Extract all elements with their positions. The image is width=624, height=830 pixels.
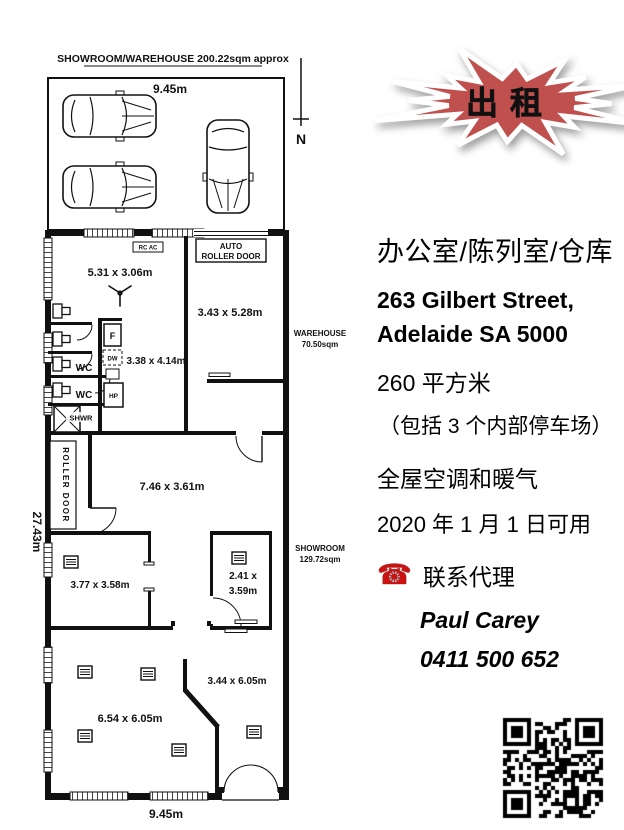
address-line-2: Adelaide SA 5000 bbox=[377, 321, 568, 348]
showroom-area-size: 129.72sqm bbox=[300, 555, 341, 564]
address-line-1: 263 Gilbert Street, bbox=[377, 287, 574, 314]
vent-icon bbox=[64, 556, 78, 568]
toilet-icon bbox=[53, 357, 70, 371]
room-label-middle: 7.46 x 3.61m bbox=[140, 481, 205, 493]
diagonal-wall bbox=[185, 690, 218, 727]
vent-icon bbox=[232, 552, 246, 564]
vent-icon bbox=[78, 730, 92, 742]
wc-label-1: WC bbox=[76, 363, 93, 374]
auto-roller-label-1: AUTO bbox=[220, 242, 243, 251]
room-label-bottom-right: 3.44 x 6.05m bbox=[208, 676, 267, 687]
toilet-icon bbox=[53, 383, 70, 397]
climate-text: 全屋空调和暖气 bbox=[377, 460, 538, 494]
vent-icon bbox=[141, 668, 155, 680]
contact-label: 联系代理 bbox=[423, 558, 515, 592]
listing-heading: 办公室/陈列室/仓库 bbox=[377, 230, 613, 269]
double-door bbox=[219, 765, 283, 801]
shower-label: SHWR bbox=[70, 414, 93, 423]
car-icon bbox=[63, 162, 156, 212]
banner-label: 出租 bbox=[466, 85, 554, 121]
roller-door-label: ROLLER DOOR bbox=[61, 447, 70, 523]
vent-icon bbox=[78, 666, 92, 678]
showroom-area-name: SHOWROOM bbox=[295, 544, 345, 553]
toilet-icon bbox=[53, 304, 70, 318]
wc-label-2: WC bbox=[76, 390, 93, 401]
auto-roller-label-2: ROLLER DOOR bbox=[201, 252, 260, 261]
room-label-small-left: 3.77 x 3.58m bbox=[71, 580, 130, 591]
qr-code bbox=[497, 712, 609, 824]
dishwasher-label: DW bbox=[108, 357, 118, 363]
for-rent-banner: 出租 bbox=[352, 20, 624, 190]
vent-icon bbox=[247, 726, 261, 738]
car-icon bbox=[63, 91, 156, 141]
room-label-office: 5.31 x 3.06m bbox=[88, 267, 153, 279]
interior-walls bbox=[48, 236, 286, 795]
toilet-icon bbox=[53, 332, 70, 346]
rc-ac-label: RC AC bbox=[139, 246, 158, 252]
car-icon bbox=[203, 120, 253, 213]
warehouse-area-name: WAREHOUSE bbox=[294, 329, 347, 338]
dim-left: 27.43m bbox=[30, 512, 44, 553]
room-label-small-right-2: 3.59m bbox=[229, 586, 257, 597]
warehouse-area-size: 70.50sqm bbox=[302, 340, 338, 349]
room-label-bottom-left: 6.54 x 6.05m bbox=[98, 713, 163, 725]
north-arrow-icon bbox=[293, 58, 309, 126]
floorplan-title: SHOWROOM/WAREHOUSE 200.22sqm approx bbox=[57, 53, 289, 65]
floorplan: SHOWROOM/WAREHOUSE 200.22sqm approx N 9.… bbox=[0, 0, 370, 830]
dim-bottom: 9.45m bbox=[149, 807, 183, 821]
hotplate-label: HP bbox=[109, 393, 119, 400]
floor-area-text: 260 平方米 bbox=[377, 364, 491, 398]
parking-text: （包括 3 个内部停车场） bbox=[379, 410, 612, 440]
room-label-kitchen: 3.38 x 4.14m bbox=[127, 356, 186, 367]
flyer-page: { "floorplan": { "title": "SHOWROOM/WARE… bbox=[0, 0, 624, 830]
fridge-label: F bbox=[110, 331, 116, 341]
dim-top: 9.45m bbox=[153, 82, 187, 96]
vent-icon bbox=[172, 744, 186, 756]
agent-name: Paul Carey bbox=[420, 607, 539, 634]
availability-text: 2020 年 1 月 1 日可用 bbox=[377, 507, 591, 539]
contact-row: ☎ 联系代理 bbox=[377, 558, 515, 592]
ceiling-fan-icon bbox=[109, 286, 131, 306]
north-label: N bbox=[296, 131, 306, 147]
phone-icon: ☎ bbox=[377, 561, 412, 589]
agent-phone: 0411 500 652 bbox=[420, 646, 559, 673]
room-label-warehouse: 3.43 x 5.28m bbox=[198, 307, 263, 319]
room-label-small-right-1: 2.41 x bbox=[229, 571, 257, 582]
